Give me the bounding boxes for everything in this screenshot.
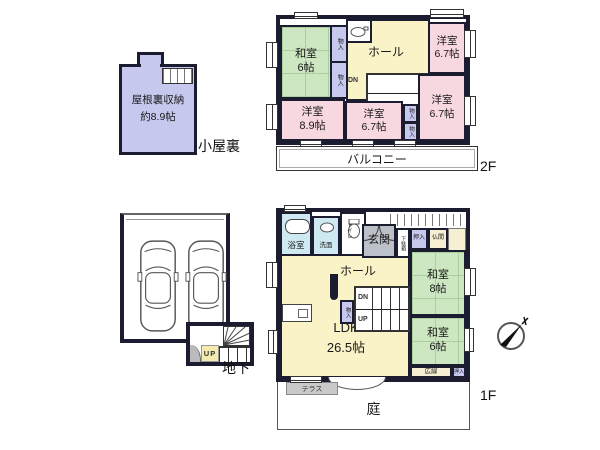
room-washitsu-6-1f: 和室 6帖 [410,316,466,366]
room-yoshitsu-tr-2f: 洋室 6.7帖 [428,22,466,74]
room-hall-2f-label: ホール [368,43,404,60]
veranda-hiroen: 広縁 [410,366,452,378]
room-bath: 浴室 [280,212,312,256]
winder-stairs-icon [223,326,250,346]
room-washitsu-6-2f: 和室 6帖 [280,25,332,99]
washbasin-icon [349,25,369,38]
car-icon [185,237,227,335]
basement-up-label: UP [204,349,216,358]
bay-window-2f-right-b [464,96,476,126]
bay-window-2f-top [430,9,464,18]
attic-ladder-icon [162,68,193,84]
corridor-strip [448,228,466,252]
compass-icon [492,314,534,356]
garden-label: 庭 [367,399,381,419]
floor-plan: 屋根裏収納 約8.9帖 小屋裏 ホール DN 和室 6帖 物入 物入 [0,0,600,450]
room-hall-1f-label: ホール [340,262,376,279]
closet-2f-b: 物入 [330,61,348,99]
shoe-cabinet: 下駄箱 [396,228,410,258]
basement-up-box: UP [201,345,219,362]
wall-stub [330,274,338,300]
floor2-plan: ホール DN 和室 6帖 物入 物入 洋室 6.7帖 [276,15,470,145]
attic-storage-size: 約8.9帖 [121,109,195,126]
room-washitsu-8-1f: 和室 8帖 [410,250,466,316]
floor2-label: 2F [480,158,496,174]
entrance-porch [390,214,466,226]
attic-storage-label: 屋根裏収納 約8.9帖 [121,92,195,126]
room-yoshitsu-right-2f: 洋室 6.7帖 [418,74,466,141]
basement-landing [190,345,201,362]
closet-oshiire-upper: 押入 [410,228,428,250]
stairs-1f-up-label: UP [358,316,368,323]
terrace-label: テラス [302,384,323,394]
closet-2f-a: 物入 [330,25,348,63]
washbasin-nook-2f [346,19,372,43]
balcony: バルコニー [276,146,478,171]
stairs-1f-dn-label: DN [358,294,368,301]
bay-window-1f-right [464,268,476,296]
attic-floor-label: 小屋裏 [198,136,240,156]
room-washroom: 洗面 [312,216,340,256]
closet-oshiire-lower: 押入 [452,366,466,378]
floor1-label: 1F [480,387,496,403]
kitchen-counter [282,304,312,322]
washbasin-icon [319,222,335,233]
altar-room: 仏間 [428,228,448,250]
room-yoshitsu-left-2f: 洋室 8.9帖 [280,99,345,141]
bay-window-2f-right-a [464,30,476,58]
stairs-1f: DN UP [354,286,410,332]
basement-label: 地下 [222,358,250,378]
attic-storage-name: 屋根裏収納 [121,92,195,109]
car-icon [137,237,179,335]
closet-2f-d: 物入 [403,122,418,141]
bathtub-icon [285,219,310,234]
closet-2f-c: 物入 [403,104,418,123]
closet-1f: 物入 [340,300,354,324]
balcony-label: バルコニー [347,150,407,167]
stairs-2f-dn-label: DN [348,77,358,84]
floor1-plan: ホール LDK 26.5帖 浴室 洗面 トイレ 玄関 [276,208,470,382]
room-yoshitsu-center-2f: 洋室 6.7帖 [345,101,403,141]
terrace: テラス [286,382,338,395]
